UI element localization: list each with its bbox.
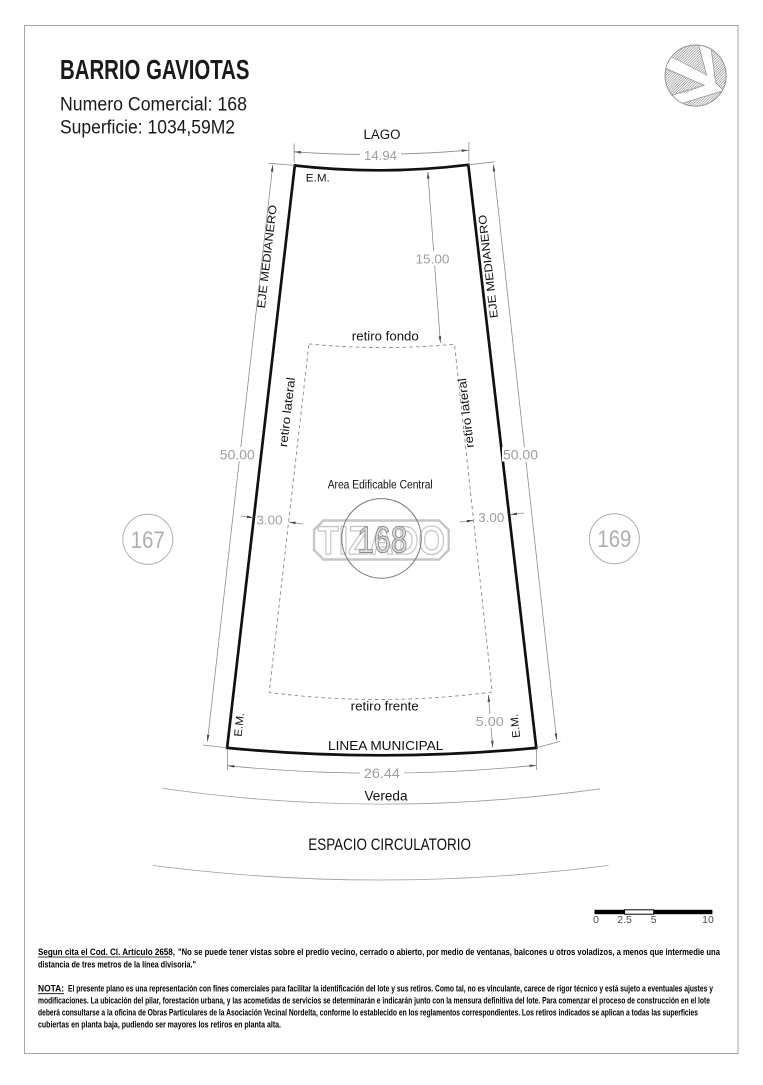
- svg-text:Superficie: 1034,59M2: Superficie: 1034,59M2: [60, 118, 235, 139]
- svg-text:distancia de tres metros de la: distancia de tres metros de la línea div…: [38, 959, 196, 970]
- svg-text:Area Edificable Central: Area Edificable Central: [328, 478, 433, 492]
- svg-text:2.5: 2.5: [617, 914, 632, 926]
- svg-text:deberá consultarse a la oficin: deberá consultarse a la oficina de Obras…: [38, 1008, 698, 1019]
- svg-text:LAGO: LAGO: [364, 127, 401, 142]
- svg-text:Segun cita el Cod. Cl. Artícul: Segun cita el Cod. Cl. Artículo 2658,: [38, 947, 175, 958]
- svg-text:50.00: 50.00: [220, 447, 255, 462]
- svg-text:cubiertas en planta baja, pudi: cubiertas en planta baja, pudiendo ser m…: [38, 1020, 281, 1031]
- svg-text:LINEA MUNICIPAL: LINEA MUNICIPAL: [328, 738, 443, 753]
- svg-text:167: 167: [131, 527, 165, 554]
- svg-text:Numero Comercial: 168: Numero Comercial: 168: [60, 95, 247, 116]
- svg-text:El presente plano es una repre: El presente plano es una representación …: [68, 984, 714, 995]
- svg-text:ESPACIO CIRCULATORIO: ESPACIO CIRCULATORIO: [308, 835, 471, 854]
- svg-text:retiro fondo: retiro fondo: [352, 329, 419, 344]
- svg-text:E.M.: E.M.: [306, 173, 330, 185]
- svg-text:26.44: 26.44: [364, 766, 401, 781]
- svg-text:5: 5: [651, 914, 657, 926]
- svg-text:50.00: 50.00: [503, 447, 538, 462]
- svg-text:0: 0: [593, 914, 599, 926]
- svg-text:"No se puede tener vistas sobr: "No se puede tener vistas sobre el predi…: [178, 947, 721, 958]
- svg-text:retiro frente: retiro frente: [351, 698, 419, 713]
- svg-text:Vereda: Vereda: [365, 788, 408, 804]
- svg-text:3.00: 3.00: [257, 512, 283, 527]
- svg-text:15.00: 15.00: [416, 251, 450, 266]
- svg-text:3.00: 3.00: [478, 510, 504, 525]
- svg-text:BARRIO GAVIOTAS: BARRIO GAVIOTAS: [60, 54, 250, 85]
- svg-text:168: 168: [357, 520, 407, 561]
- svg-text:14.94: 14.94: [364, 148, 397, 163]
- svg-text:NOTA:: NOTA:: [38, 984, 64, 995]
- svg-text:E.M.: E.M.: [232, 712, 246, 737]
- svg-text:10: 10: [702, 914, 714, 926]
- svg-text:5.00: 5.00: [476, 714, 504, 729]
- svg-text:169: 169: [597, 526, 631, 553]
- svg-text:modificaciones. La ubicación d: modificaciones. La ubicación del pilar, …: [38, 996, 710, 1007]
- svg-text:E.M.: E.M.: [509, 713, 523, 738]
